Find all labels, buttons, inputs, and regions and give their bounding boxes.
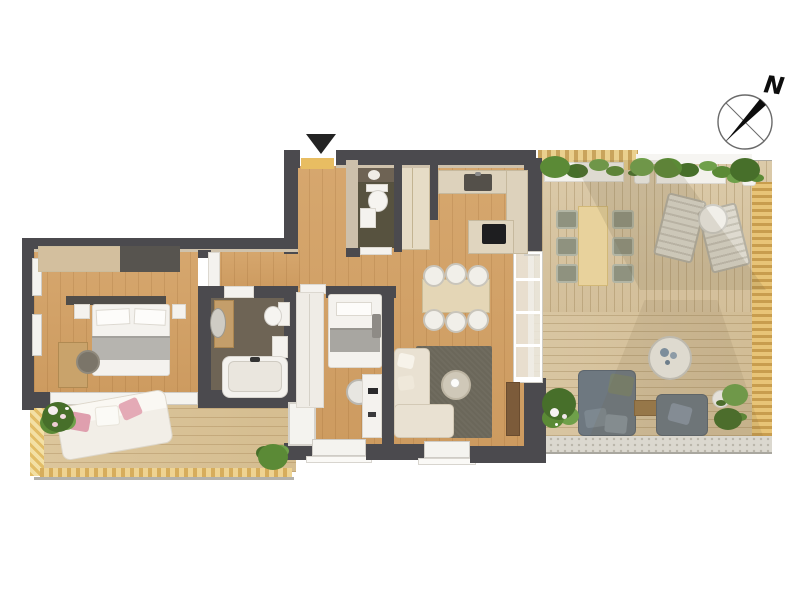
living-sideboard <box>506 382 520 436</box>
master-nightstand-left <box>74 304 90 319</box>
living-coffee-cup <box>450 378 460 388</box>
dining-chair <box>423 265 445 287</box>
dining-chair <box>467 265 489 287</box>
wall-wc-bottom-stub <box>346 248 360 257</box>
pot-greens-1 <box>630 158 654 176</box>
master-wardrobe-dark-section <box>120 246 180 272</box>
hall-closet-divider <box>412 168 413 248</box>
bathroom-cabinet <box>272 336 288 358</box>
balcony-flower-planter <box>42 402 74 432</box>
bathroom-mirror <box>210 308 226 338</box>
terrace-chair <box>556 264 578 283</box>
terrace-chair <box>612 237 634 256</box>
kitchen-faucet <box>475 172 481 176</box>
bedroom2-pillow <box>336 302 372 316</box>
window-master-left-2 <box>32 314 42 356</box>
entrance-arrow-icon <box>306 134 336 154</box>
window-mid-1 <box>312 439 366 456</box>
compass-rose-icon: N <box>703 62 798 162</box>
terrace-dining-table <box>578 206 608 286</box>
wall-bedroom2-right <box>382 286 394 446</box>
bath-door-gap <box>224 286 254 298</box>
dining-chair <box>445 311 467 333</box>
terrace-armchair <box>656 394 708 436</box>
wc-sink-cabinet <box>360 208 376 228</box>
bedroom2-desk <box>362 374 382 438</box>
dining-chair <box>423 309 445 331</box>
master-blanket <box>92 336 170 360</box>
wall-right-lower <box>524 378 546 452</box>
planter-greens-1 <box>540 156 570 178</box>
wall-wc-left <box>346 160 358 256</box>
terrace-plant-left-blossoms <box>550 408 559 417</box>
kitchen-cooktop <box>482 224 506 244</box>
floor-corridor-west <box>208 250 300 288</box>
terrace-glass-door <box>514 252 542 382</box>
master-pillow-left <box>96 308 131 326</box>
wall-master-bath <box>198 286 211 398</box>
window-sill-2 <box>418 458 476 465</box>
bedroom2-wardrobe <box>296 292 324 408</box>
master-door-leaf <box>208 252 220 288</box>
kitchen-sink <box>464 174 492 191</box>
balcony-potted-plant <box>258 444 288 470</box>
master-vanity-chair <box>76 350 100 374</box>
entrance-mat <box>301 158 334 169</box>
balcony-flower-blossoms <box>48 406 58 415</box>
wc-counter-sink <box>368 170 380 180</box>
terrace-chair <box>612 264 634 283</box>
window-mid-2 <box>424 441 470 458</box>
terrace-gravel-strip <box>534 436 772 454</box>
terrace-round-table <box>648 336 692 380</box>
outdoor-sofa-pillow-2 <box>604 414 628 434</box>
wall-wc-right <box>394 162 402 252</box>
living-sofa-pillow-2 <box>397 375 415 391</box>
balcony-rim <box>34 477 294 480</box>
armchair-pillow <box>667 402 693 425</box>
balcony-slat-strip <box>40 468 292 477</box>
terrace-side-table <box>698 204 728 234</box>
bedroom2-desk-item <box>368 412 376 417</box>
terrace-plant-right-2 <box>714 408 742 430</box>
dining-chair <box>467 309 489 331</box>
wall-mid-bottom-b <box>366 444 424 460</box>
terrace-fence-right <box>752 182 772 436</box>
bedroom2-wardrobe-line <box>309 294 310 406</box>
wc-door-leaf <box>360 247 392 255</box>
bedroom2-desk-laptop <box>368 388 378 394</box>
master-nightstand-right <box>172 304 186 319</box>
terrace-plant-right-1 <box>722 384 748 406</box>
living-sofa-pillow-1 <box>397 352 416 369</box>
window-sill-1 <box>306 456 372 463</box>
floor-plan-scene: N <box>0 0 800 600</box>
outdoor-sofa-throw <box>607 373 634 397</box>
terrace-chair <box>612 210 634 229</box>
bathtub-basin <box>228 361 282 392</box>
bathtub-faucet <box>250 357 260 362</box>
wall-closet-right <box>430 162 438 220</box>
living-sofa-chaise <box>394 404 454 438</box>
compass-north-label: N <box>762 70 786 101</box>
bathroom-toilet-bowl <box>264 306 282 326</box>
wall-bath-top-a <box>198 286 224 298</box>
terrace-outdoor-sofa <box>578 370 636 436</box>
terrace-plant-left <box>542 388 576 420</box>
terrace-chair <box>556 237 578 256</box>
bedroom2-side-runner <box>372 314 381 338</box>
master-pillow-right <box>134 308 167 326</box>
terrace-table-flowers <box>660 348 669 357</box>
terrace-chair <box>556 210 578 229</box>
planter-greens-2 <box>654 158 682 178</box>
dining-chair <box>445 263 467 285</box>
balcony-pillow-white <box>95 405 121 427</box>
hall-closet <box>398 166 430 250</box>
terrace-wood-bench <box>634 400 658 416</box>
